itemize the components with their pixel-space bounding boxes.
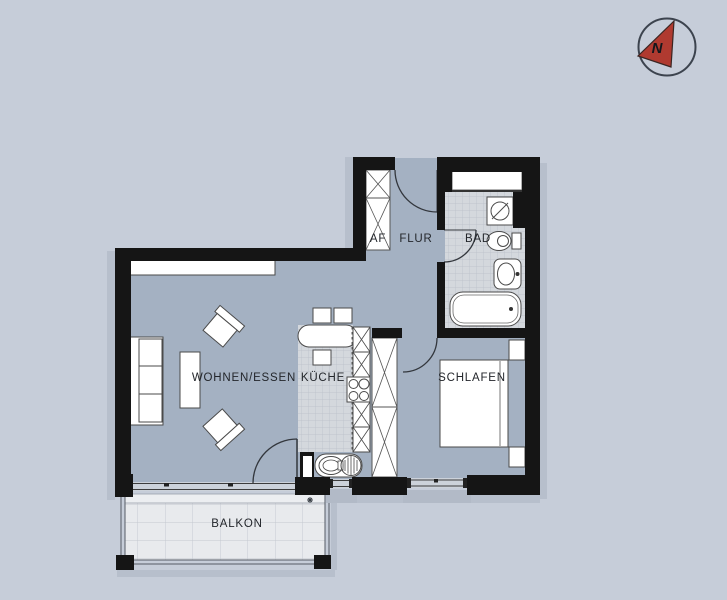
- bedroom-window: [403, 478, 471, 503]
- floor-plan-page: WOHNEN/ESSEN KÜCHE FLUR AF BAD SCHLAFEN …: [0, 0, 727, 600]
- kitchen-chair: [334, 308, 352, 323]
- wall-living-left: [115, 248, 131, 478]
- wall-corner-bottom-left: [115, 474, 133, 497]
- floor-plan-drawing: WOHNEN/ESSEN KÜCHE FLUR AF BAD SCHLAFEN …: [0, 0, 727, 600]
- bedroom-wardrobe: [372, 338, 397, 477]
- label-bath: BAD: [465, 233, 491, 245]
- north-arrow-letter: N: [652, 40, 664, 57]
- bath-inner-wall-line: [445, 190, 523, 192]
- wall-bedroom-top-right: [437, 328, 540, 338]
- north-arrow: N: [638, 19, 696, 76]
- wall-bottom-under-wardrobe: [352, 477, 407, 495]
- kitchen-sink: [315, 454, 362, 477]
- wall-right: [525, 157, 540, 495]
- kitchen-sink-side-cabinet: [300, 452, 314, 480]
- toilet: [487, 232, 521, 251]
- nightstand-bottom: [509, 447, 525, 467]
- label-balcony: BALKON: [211, 518, 262, 530]
- bathtub: [450, 292, 521, 326]
- wall-flur-bath-upper: [437, 170, 445, 230]
- label-bedroom: SCHLAFEN: [438, 372, 506, 384]
- sofa: [130, 337, 163, 425]
- label-kitchen: KÜCHE: [301, 372, 345, 384]
- label-hall: FLUR: [399, 233, 432, 245]
- bath-wall-cabinet: [452, 171, 522, 190]
- bathroom-sink: [494, 259, 521, 289]
- wall-bottom-bedroom-right: [467, 475, 527, 495]
- label-living: WOHNEN/ESSEN: [192, 372, 296, 384]
- wall-living-top: [115, 248, 366, 261]
- wall-flur-bath-lower: [437, 262, 445, 328]
- living-balcony-window: [133, 482, 297, 491]
- kitchen-counter-table: [298, 325, 357, 347]
- kitchen-chair: [313, 308, 331, 323]
- balcony-threshold: [125, 494, 325, 503]
- wall-bath-niche-block: [513, 192, 525, 228]
- label-storage: AF: [370, 233, 386, 245]
- kitchen-chair: [313, 350, 331, 365]
- wall-upper-left: [353, 157, 366, 257]
- wall-bedroom-top-left: [372, 328, 402, 338]
- nightstand-top: [509, 340, 525, 360]
- stove: [347, 377, 370, 402]
